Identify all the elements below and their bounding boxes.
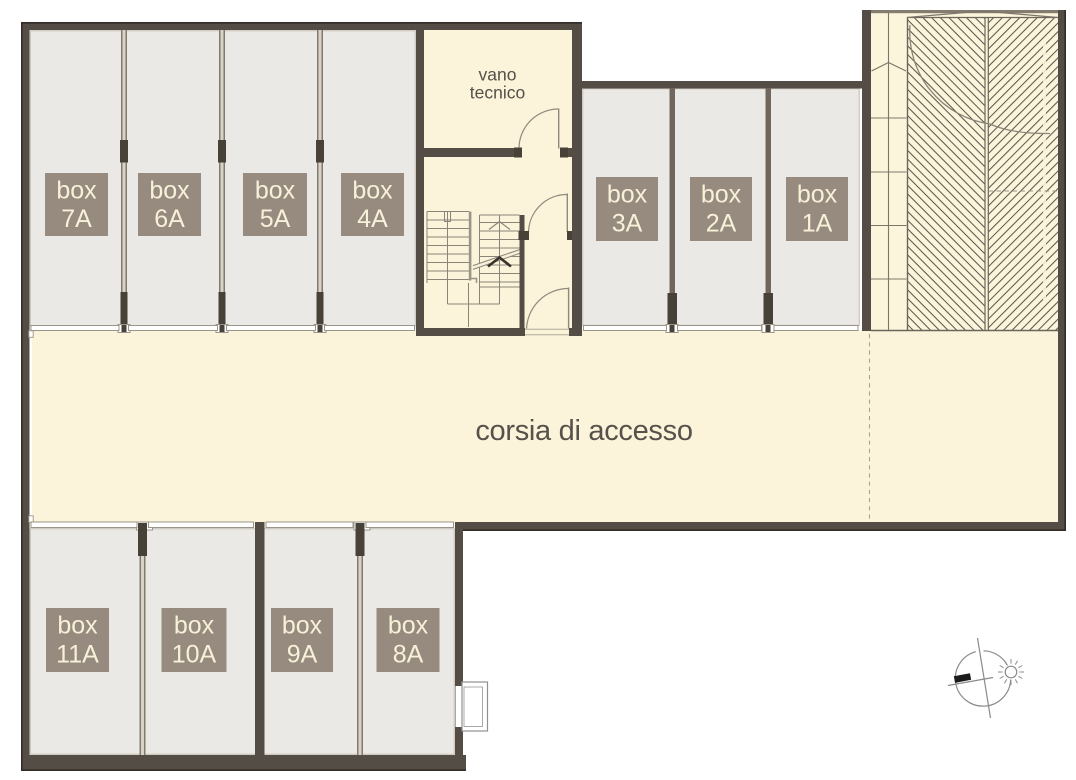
svg-text:box: box — [797, 181, 838, 209]
svg-text:box: box — [701, 181, 742, 209]
svg-text:box: box — [57, 612, 98, 640]
svg-text:vano: vano — [479, 65, 517, 85]
svg-text:8A: 8A — [393, 641, 424, 669]
svg-text:1A: 1A — [802, 210, 833, 238]
svg-text:9A: 9A — [287, 641, 318, 669]
svg-text:box: box — [388, 612, 429, 640]
svg-text:4A: 4A — [357, 205, 388, 233]
svg-text:box: box — [255, 177, 296, 205]
svg-text:10A: 10A — [172, 641, 217, 669]
svg-text:box: box — [282, 612, 323, 640]
svg-text:11A: 11A — [56, 641, 99, 669]
svg-text:box: box — [149, 177, 190, 205]
svg-text:2A: 2A — [706, 210, 737, 238]
svg-text:corsia di accesso: corsia di accesso — [475, 415, 692, 447]
svg-text:tecnico: tecnico — [470, 83, 525, 103]
svg-text:box: box — [607, 181, 648, 209]
svg-text:5A: 5A — [260, 205, 291, 233]
svg-text:7A: 7A — [61, 205, 92, 233]
svg-text:box: box — [56, 177, 97, 205]
svg-text:3A: 3A — [612, 210, 643, 238]
svg-text:box: box — [174, 612, 215, 640]
svg-text:6A: 6A — [154, 205, 185, 233]
svg-text:box: box — [352, 177, 393, 205]
